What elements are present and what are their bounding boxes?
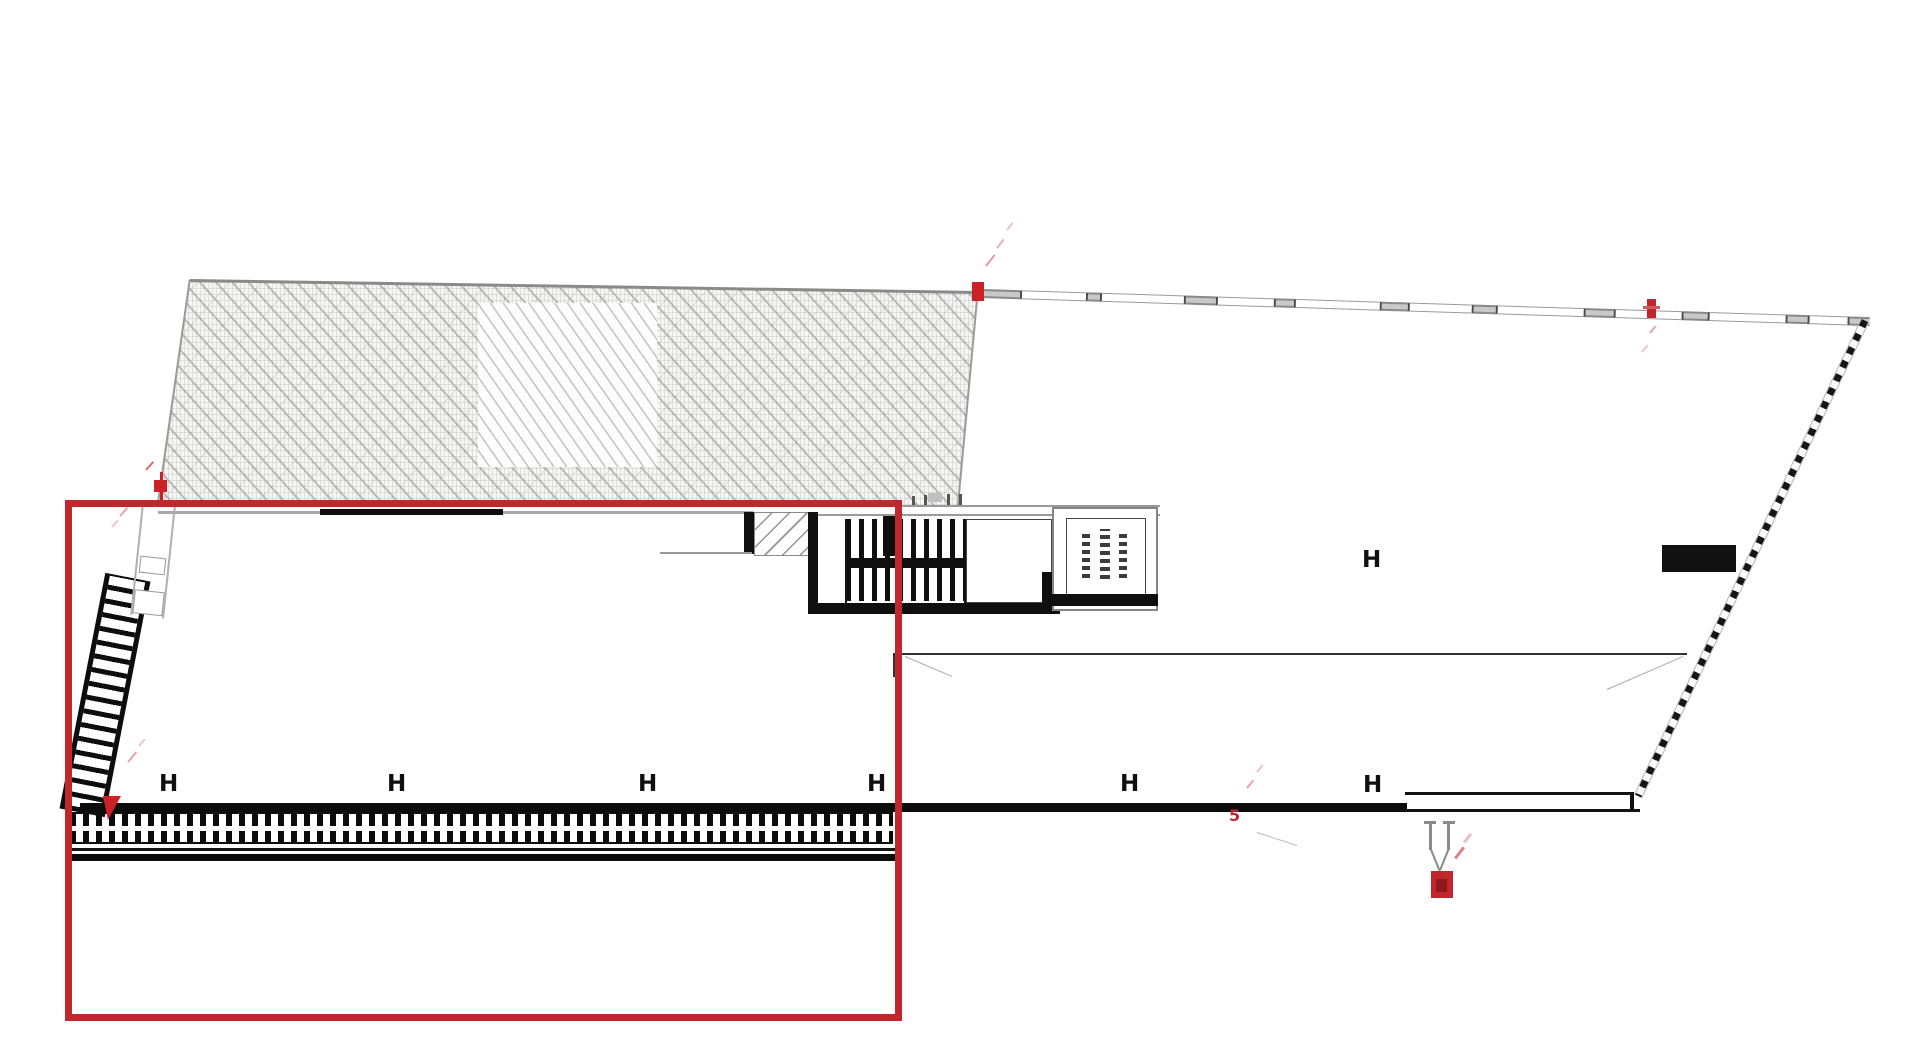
- elevator-label-illegible: [1082, 534, 1090, 578]
- dark-wall-block: [1662, 545, 1736, 572]
- wall-segment: [1684, 311, 1708, 321]
- elevator-bottom-wall: [1050, 594, 1158, 606]
- fork-prong: [1429, 823, 1432, 850]
- red-flag: [154, 480, 167, 492]
- red-survey-marker-arm: [1643, 306, 1660, 309]
- elevator-label-illegible: [1119, 532, 1127, 578]
- guard-tick: [924, 495, 927, 505]
- red-dash: [1641, 344, 1648, 352]
- window-opening: [1496, 305, 1586, 317]
- stair-landing-box: [966, 519, 1052, 603]
- hatch-light-patch: [478, 303, 657, 467]
- red-dash: [1256, 764, 1263, 772]
- right-wall-outline-bottom: [1400, 809, 1640, 812]
- red-label-5: 5: [1229, 808, 1240, 824]
- wall-segment: [1787, 315, 1807, 325]
- red-dash: [1246, 780, 1254, 789]
- window-opening: [1294, 299, 1382, 311]
- column-marker: H: [1120, 773, 1139, 796]
- column-marker: H: [1363, 774, 1382, 797]
- red-dash: [996, 239, 1004, 249]
- wall-segment: [1382, 302, 1408, 312]
- guard-tick: [947, 494, 950, 505]
- guard-tick: [959, 494, 962, 505]
- column-marker: H: [1362, 549, 1381, 572]
- red-dash: [1463, 833, 1472, 843]
- window-opening: [1807, 315, 1849, 325]
- window-opening: [1216, 296, 1276, 307]
- floor-edge-line: [893, 653, 1687, 655]
- wall-segment: [1586, 308, 1614, 318]
- wall-segment: [980, 289, 1020, 299]
- guard-chunk: [928, 493, 942, 502]
- fork-serif: [1443, 821, 1455, 824]
- red-dash: [985, 254, 995, 266]
- guard-tick: [912, 496, 915, 505]
- red-survey-marker-top: [972, 282, 984, 301]
- right-wall-outline-top: [1405, 792, 1633, 795]
- elevator-label-illegible: [1100, 529, 1110, 579]
- fork-serif: [1424, 821, 1436, 824]
- red-survey-station-core: [1436, 879, 1447, 892]
- leader-line: [1607, 656, 1684, 690]
- fork-stem: [1440, 849, 1450, 871]
- window-opening: [1100, 293, 1186, 305]
- leader-line: [905, 656, 952, 677]
- red-dash: [1649, 325, 1656, 333]
- red-arrow-marker: [103, 796, 121, 820]
- red-dash: [1006, 222, 1013, 230]
- wall-segment: [1276, 298, 1294, 308]
- window-opening: [1020, 290, 1088, 301]
- wall-segment: [1088, 292, 1100, 301]
- red-dash: [1454, 846, 1465, 859]
- perimeter-window-wall: [980, 289, 1870, 326]
- wall-segment: [1474, 305, 1496, 315]
- fork-prong: [1447, 823, 1450, 850]
- wall-segment: [1186, 296, 1216, 306]
- right-wall-outline-cap: [1630, 792, 1634, 812]
- window-opening: [1408, 303, 1474, 314]
- window-opening: [1707, 312, 1787, 324]
- red-dash: [145, 461, 154, 471]
- site-plan-canvas: HHHHHHH5: [0, 0, 1920, 1063]
- red-selection-rectangle: [65, 500, 902, 1021]
- leader-line: [1257, 832, 1297, 846]
